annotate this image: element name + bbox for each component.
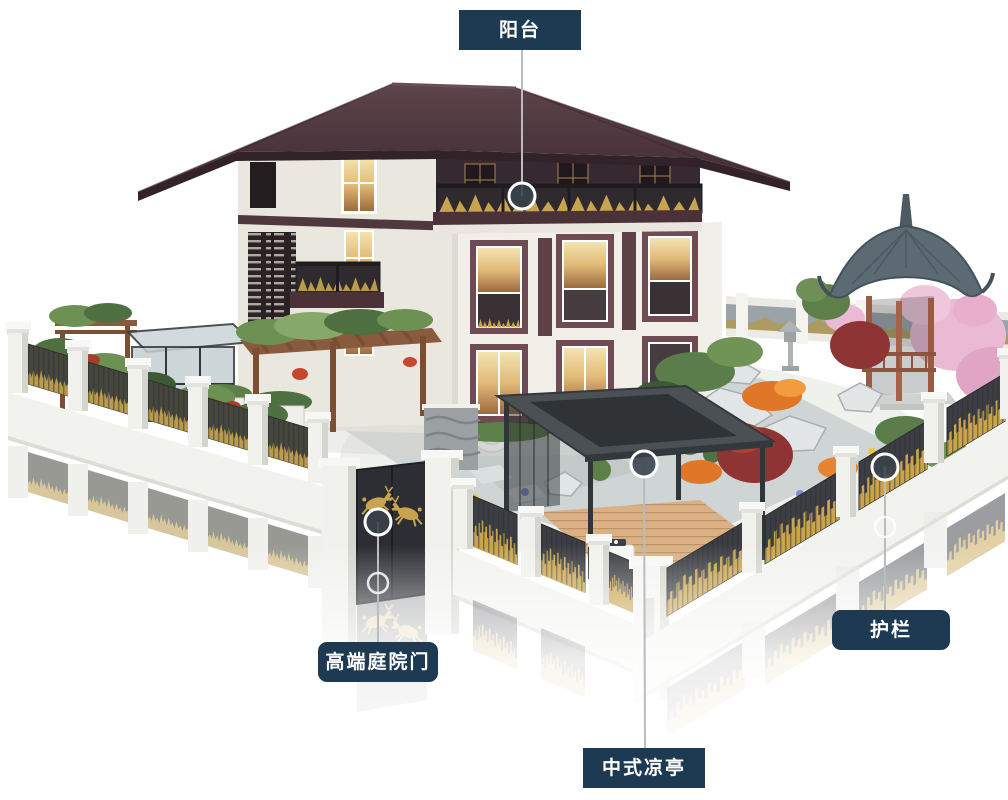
balcony-railing <box>433 184 702 234</box>
window <box>470 240 528 334</box>
hanging-flower-basket <box>292 368 308 380</box>
window <box>642 230 698 322</box>
window <box>250 162 276 208</box>
reflection-fade-overlay <box>0 545 1008 800</box>
balcony-label[interactable]: 阳台 <box>459 10 581 50</box>
pavilion-label[interactable]: 中式凉亭 <box>583 748 705 788</box>
window <box>556 234 614 328</box>
guardrail-hotspot[interactable] <box>872 454 898 480</box>
pavilion-hotspot[interactable] <box>631 451 657 477</box>
villa-feature-showcase: 阳台 高端庭院门 中式凉亭 护栏 <box>0 0 1008 800</box>
window <box>341 156 377 214</box>
gate-label[interactable]: 高端庭院门 <box>318 642 438 682</box>
balcony-hotspot[interactable] <box>509 183 535 209</box>
gate-hotspot[interactable] <box>365 509 391 535</box>
pavilion-leader-line <box>644 464 645 748</box>
villa-scene-illustration <box>0 0 1008 800</box>
side-balcony <box>290 262 384 316</box>
guardrail-label[interactable]: 护栏 <box>832 610 950 650</box>
